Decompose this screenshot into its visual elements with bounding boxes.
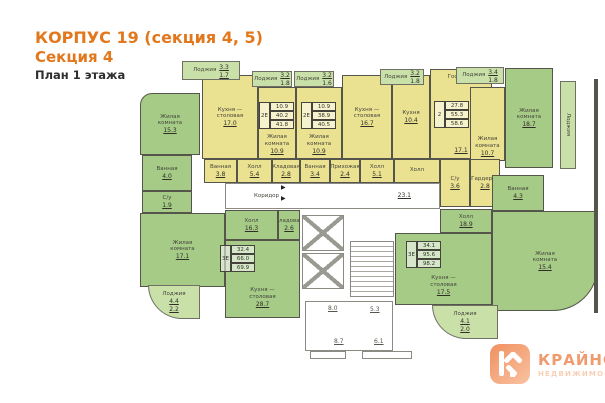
- room-wc-apt3: С/у 3.6: [440, 159, 470, 207]
- loggia-top-2: Лоджия 3.2 1.8: [252, 71, 292, 87]
- entrance-arrow-icon: ▶: [281, 185, 286, 191]
- apartment-stamp-2: 2Е 10.9 38.9 40.5: [301, 102, 336, 129]
- room-hall-right: Холл 18.9: [440, 209, 492, 233]
- staircase: [350, 241, 394, 297]
- room-hall-apt1: Холл 5.4: [237, 159, 272, 183]
- room-storage-bottom-left: Кладовая 2.6: [278, 210, 300, 240]
- room-hall-apt3: Холл: [394, 159, 440, 183]
- room-living-apt3: Жилая комната 10.7: [470, 87, 505, 161]
- loggia-bottom-left: Лоджия 4.4 2.2: [148, 285, 200, 319]
- apartment-stamp-1: 2Е 10.9 40.2 41.8: [259, 102, 294, 129]
- krainov-logo-icon: [490, 344, 530, 384]
- loggia-right-vertical: Лоджия: [560, 81, 576, 169]
- elevator-shaft: [302, 253, 344, 289]
- room-bath-top-left: Ванная 4.0: [142, 155, 192, 191]
- room-bath-right: Ванная 4.3: [492, 175, 544, 211]
- room-living-top-left: Жилая комната 15.3: [140, 93, 200, 155]
- room-wc-top-left: С/у 1.9: [142, 191, 192, 213]
- dimension-label: 8.0: [328, 305, 338, 312]
- apartment-stamp-5: 3Е 34.1 95.6 98.2: [406, 241, 441, 268]
- dimension-label: 5.3: [370, 306, 380, 313]
- logo-subtitle: НЕДВИЖИМОСТЬ: [538, 370, 605, 378]
- entrance-arrow-icon: ▶: [281, 196, 286, 202]
- corridor: Коридор 23.1: [225, 183, 440, 209]
- room-hall-bottom-left: Холл 16.3: [225, 210, 278, 240]
- outer-wall: [594, 79, 598, 313]
- room-bath-apt2: Ванная 3.4: [300, 159, 330, 183]
- elevator-shaft: [302, 215, 344, 251]
- floor-plan: Жилая комната 15.3 Ванная 4.0 С/у 1.9 Жи…: [140, 55, 602, 358]
- loggia-top-left: Лоджия 3.3 1.7: [182, 61, 240, 80]
- apartment-stamp-4: 3Е 32.4 66.0 69.9: [220, 245, 255, 272]
- page-title: КОРПУС 19 (секция 4, 5): [35, 28, 263, 47]
- loggia-top-3: Лоджия 3.2 1.6: [294, 71, 334, 87]
- room-bath-apt1: Ванная 3.8: [204, 159, 237, 183]
- loggia-top-right: Лоджия 3.4 1.8: [456, 67, 504, 84]
- logo-text: КРАЙНОВ НЕДВИЖИМОСТЬ: [538, 351, 605, 378]
- room-living-top-right: Жилая комната 18.7: [505, 68, 553, 168]
- room-living-bottom-left: Жилая комната 17.1: [140, 213, 225, 287]
- loggia-top-4: Лоджия 3.2 1.8: [380, 69, 424, 85]
- room-hall-apt2: Холл 5.1: [360, 159, 394, 183]
- room-kitchen-apt3: Кухня 10.4: [392, 75, 430, 159]
- room-kitchen-apt1: Кухня — столовая 17.0: [202, 75, 258, 159]
- krainov-logo: КРАЙНОВ НЕДВИЖИМОСТЬ: [490, 344, 605, 384]
- room-kitchen-apt2: Кухня — столовая 16.7: [342, 75, 392, 159]
- room-entry-apt2: Прихожая 2.4: [330, 159, 360, 183]
- logo-name: КРАЙНОВ: [538, 351, 605, 369]
- apartment-stamp-3: 2 27.8 55.3 58.6: [434, 101, 469, 128]
- entrance-porch: [362, 351, 412, 359]
- loggia-bottom-right: Лоджия 4.1 2.0: [432, 305, 498, 339]
- entrance-porch: [310, 351, 346, 359]
- room-storage-apt1: Кладовая 2.8: [272, 159, 300, 183]
- room-living-bottom-right: Жилая комната 15.4: [492, 211, 598, 311]
- dimension-label: 8.7: [334, 338, 344, 345]
- dimension-label: 6.1: [374, 338, 384, 345]
